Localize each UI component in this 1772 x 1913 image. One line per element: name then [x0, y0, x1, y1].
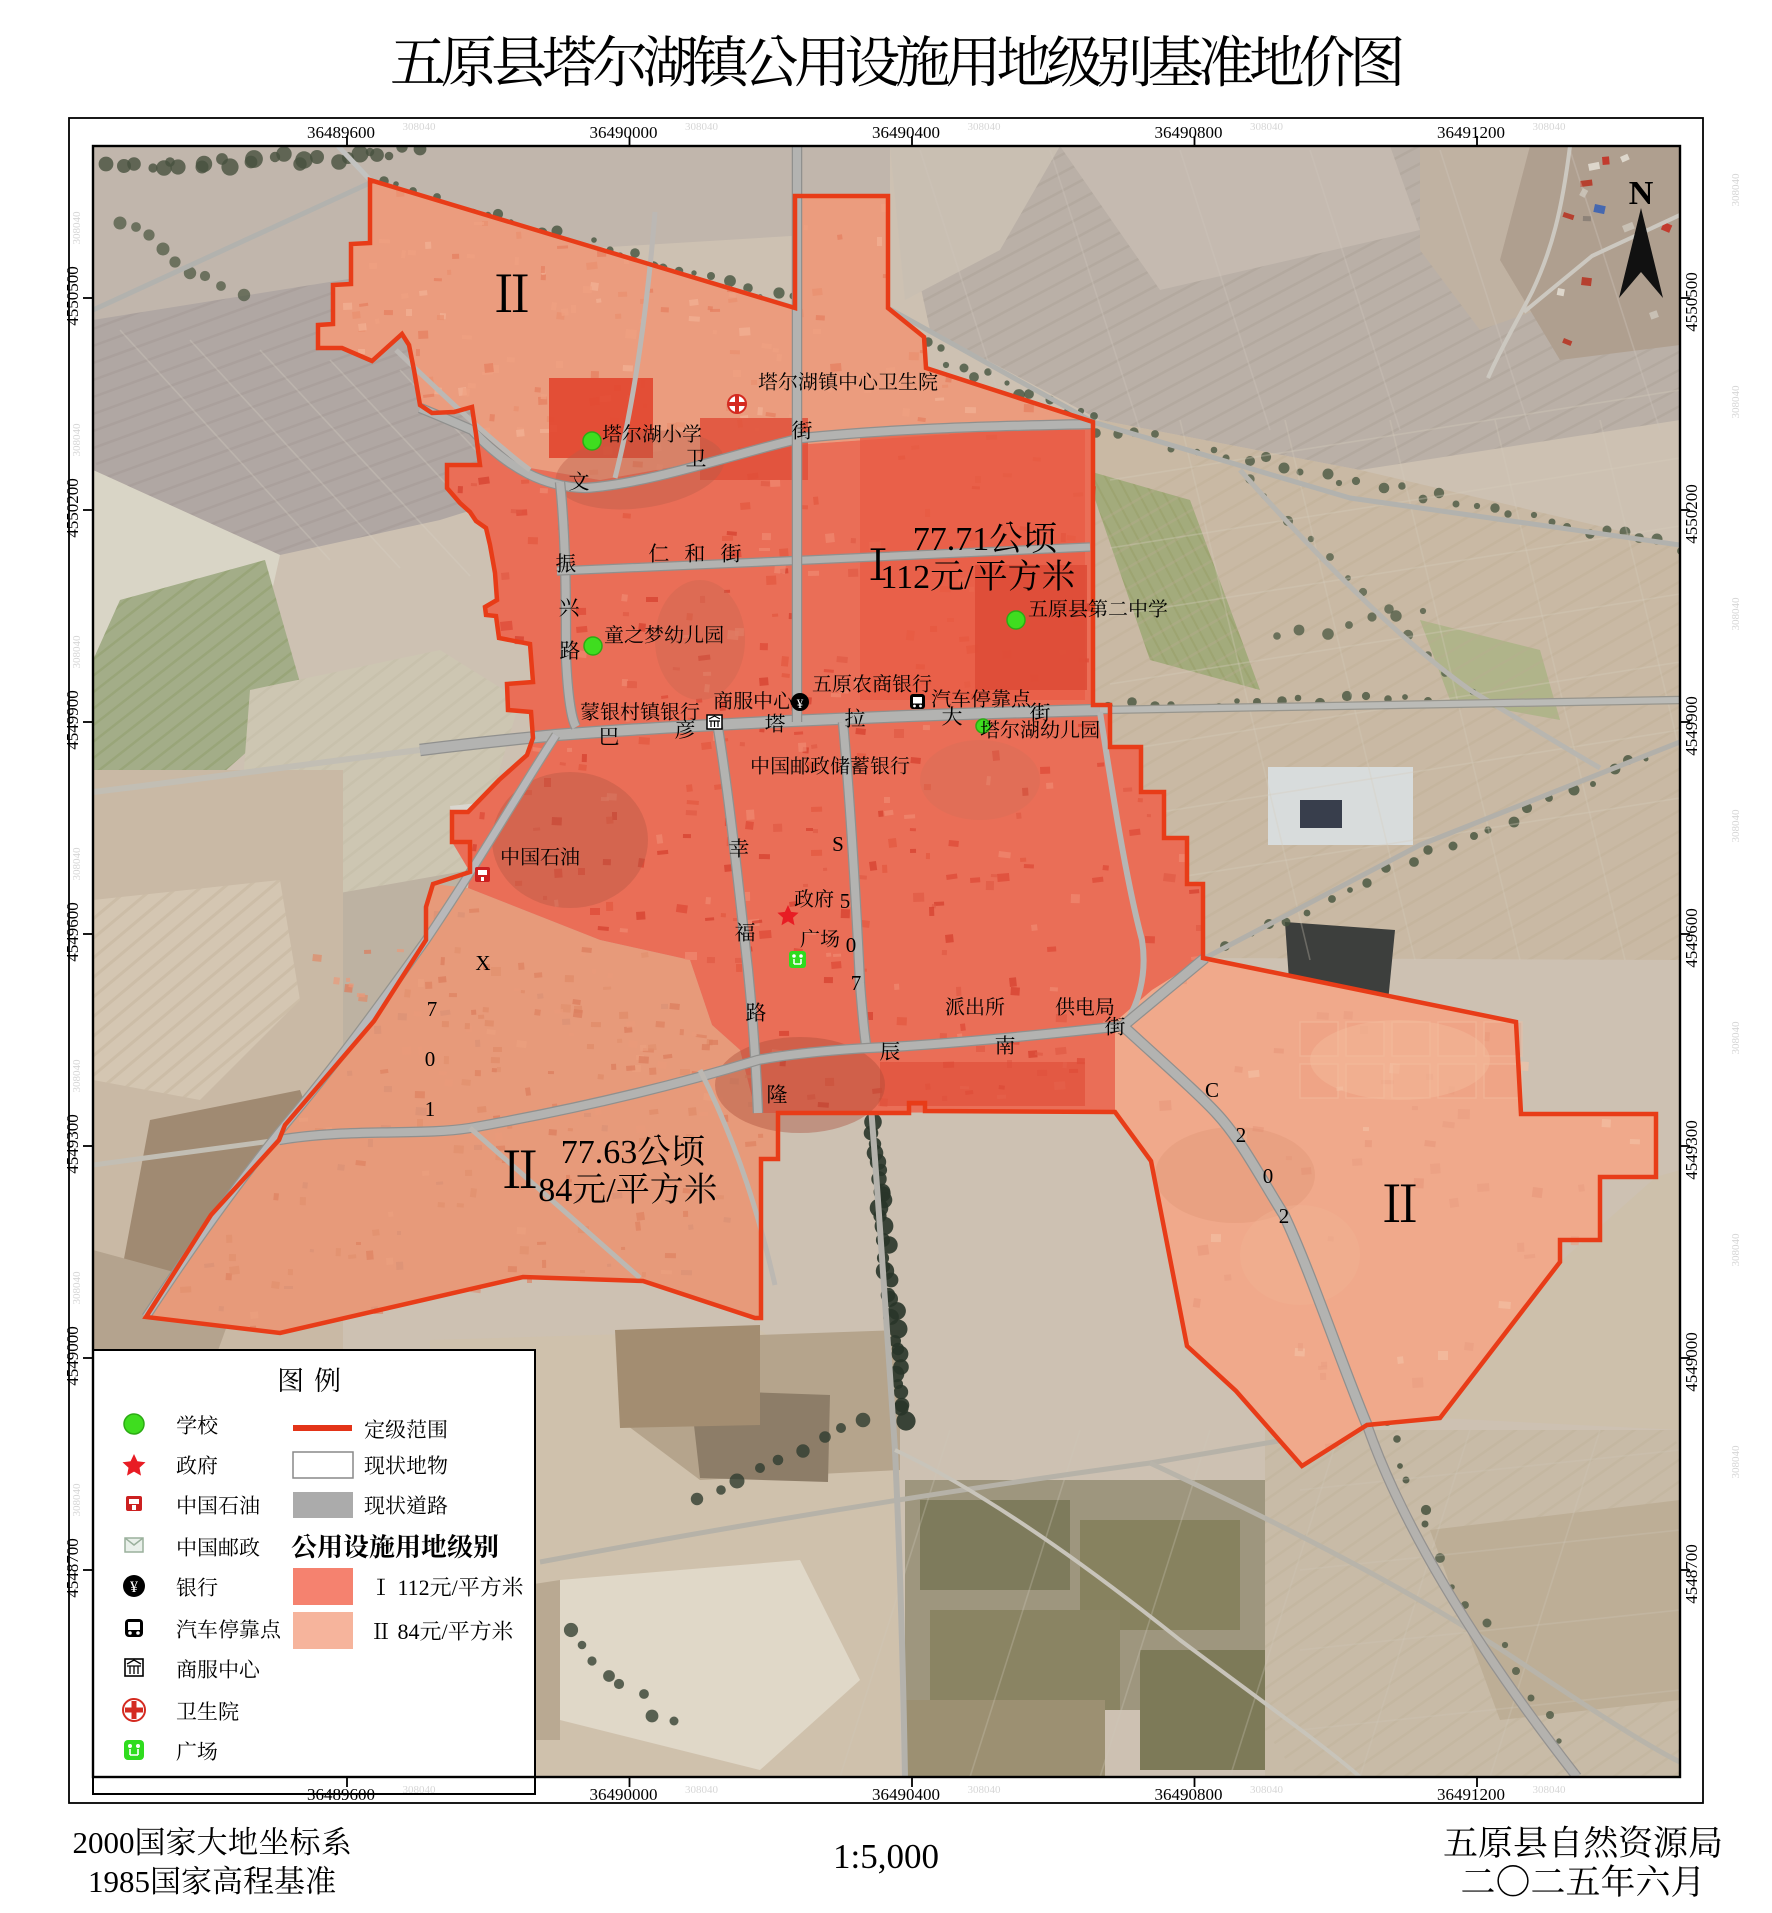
svg-text:308040: 308040	[1250, 121, 1284, 133]
svg-text:308040: 308040	[71, 1271, 83, 1305]
svg-text:308040: 308040	[71, 635, 83, 669]
svg-text:Ⅱ 84元/平方米: Ⅱ 84元/平方米	[370, 1619, 514, 1644]
svg-text:大: 大	[942, 705, 963, 729]
svg-text:0: 0	[425, 1047, 436, 1071]
svg-text:36489600: 36489600	[307, 123, 375, 142]
svg-text:彦: 彦	[675, 718, 696, 742]
svg-text:4549900: 4549900	[1682, 696, 1701, 756]
svg-text:幸: 幸	[729, 837, 750, 861]
svg-text:5: 5	[840, 889, 851, 913]
svg-text:辰: 辰	[880, 1040, 901, 1064]
svg-text:派出所: 派出所	[945, 997, 1005, 1019]
svg-text:308040: 308040	[71, 1059, 83, 1093]
svg-text:二〇二五年六月: 二〇二五年六月	[1460, 1863, 1705, 1902]
svg-text:308040: 308040	[1730, 1233, 1742, 1267]
svg-text:拉: 拉	[845, 707, 866, 731]
svg-text:公用设施用地级别: 公用设施用地级别	[291, 1533, 499, 1562]
svg-text:308040: 308040	[403, 121, 437, 133]
svg-text:商服中心: 商服中心	[713, 690, 793, 713]
svg-text:银行: 银行	[176, 1576, 218, 1600]
svg-text:308040: 308040	[968, 121, 1002, 133]
svg-text:中国邮政: 中国邮政	[176, 1536, 260, 1560]
svg-text:36490000: 36490000	[590, 1785, 658, 1804]
svg-text:77.63公顷: 77.63公顷	[561, 1134, 706, 1171]
svg-text:84元/平方米: 84元/平方米	[538, 1172, 717, 1209]
svg-text:S: S	[832, 832, 844, 856]
svg-text:仁: 仁	[649, 542, 670, 566]
svg-text:隆: 隆	[767, 1083, 788, 1107]
svg-text:广场: 广场	[800, 929, 840, 951]
svg-text:308040: 308040	[1730, 1445, 1742, 1479]
svg-text:¥: ¥	[797, 696, 804, 711]
svg-text:36490000: 36490000	[590, 123, 658, 142]
svg-text:308040: 308040	[685, 1784, 719, 1796]
svg-text:N: N	[1629, 175, 1654, 212]
svg-text:五原县自然资源局: 五原县自然资源局	[1443, 1824, 1723, 1863]
svg-text:五原农商银行: 五原农商银行	[812, 673, 932, 696]
svg-text:0: 0	[1263, 1164, 1274, 1188]
svg-text:中国邮政储蓄银行: 中国邮政储蓄银行	[750, 756, 910, 778]
svg-text:五原县塔尔湖镇公用设施用地级别基准地价图: 五原县塔尔湖镇公用设施用地级别基准地价图	[390, 33, 1403, 95]
svg-text:塔尔湖镇中心卫生院: 塔尔湖镇中心卫生院	[758, 372, 938, 394]
svg-text:4550500: 4550500	[1682, 272, 1701, 332]
svg-text:308040: 308040	[1730, 597, 1742, 631]
svg-text:4549600: 4549600	[1682, 908, 1701, 968]
svg-text:政府: 政府	[794, 889, 834, 911]
svg-text:路: 路	[746, 1001, 767, 1025]
svg-text:和: 和	[685, 542, 706, 566]
svg-text:4550200: 4550200	[1682, 484, 1701, 544]
svg-text:1985国家高程基准: 1985国家高程基准	[88, 1864, 336, 1899]
svg-text:现状地物: 现状地物	[364, 1454, 448, 1478]
svg-text:C: C	[1205, 1078, 1219, 1102]
svg-text:图例: 图例	[277, 1366, 351, 1396]
svg-text:街: 街	[792, 419, 813, 443]
svg-text:4549600: 4549600	[63, 902, 82, 962]
svg-text:童之梦幼儿园: 童之梦幼儿园	[604, 624, 724, 647]
svg-text:7: 7	[427, 997, 438, 1021]
svg-text:2: 2	[1236, 1123, 1247, 1147]
svg-text:2: 2	[1279, 1204, 1290, 1228]
svg-text:308040: 308040	[968, 1784, 1002, 1796]
svg-text:36490400: 36490400	[872, 1785, 940, 1804]
svg-text:4549300: 4549300	[1682, 1120, 1701, 1180]
svg-text:36489600: 36489600	[307, 1785, 375, 1804]
svg-text:卫: 卫	[686, 447, 707, 471]
svg-text:塔: 塔	[765, 712, 786, 736]
svg-text:112元/平方米: 112元/平方米	[880, 559, 1075, 596]
svg-text:308040: 308040	[71, 1483, 83, 1517]
svg-text:Ⅱ: Ⅱ	[487, 267, 537, 323]
svg-text:¥: ¥	[130, 1579, 138, 1596]
svg-text:308040: 308040	[1533, 1784, 1567, 1796]
svg-text:4548700: 4548700	[63, 1538, 82, 1598]
svg-text:中国石油: 中国石油	[176, 1494, 260, 1518]
svg-text:4549000: 4549000	[1682, 1332, 1701, 1392]
svg-text:308040: 308040	[685, 121, 719, 133]
svg-text:文: 文	[569, 470, 590, 494]
svg-text:308040: 308040	[403, 1784, 437, 1796]
svg-text:Ⅰ 112元/平方米: Ⅰ 112元/平方米	[370, 1575, 524, 1600]
svg-text:4549000: 4549000	[63, 1326, 82, 1386]
svg-text:Ⅱ: Ⅱ	[1375, 1177, 1425, 1233]
svg-text:4549900: 4549900	[63, 690, 82, 750]
svg-text:福: 福	[735, 921, 756, 945]
svg-text:巴: 巴	[599, 725, 620, 749]
svg-text:36490400: 36490400	[872, 123, 940, 142]
svg-text:中国石油: 中国石油	[500, 847, 580, 869]
svg-text:街: 街	[721, 542, 742, 566]
svg-text:街: 街	[1030, 701, 1051, 725]
svg-text:商服中心: 商服中心	[176, 1658, 260, 1682]
svg-text:308040: 308040	[1730, 173, 1742, 207]
svg-text:36491200: 36491200	[1437, 123, 1505, 142]
svg-text:308040: 308040	[71, 847, 83, 881]
svg-text:308040: 308040	[1730, 1021, 1742, 1055]
svg-text:77.71公顷: 77.71公顷	[913, 521, 1058, 558]
svg-text:4549300: 4549300	[63, 1114, 82, 1174]
svg-text:308040: 308040	[71, 211, 83, 245]
svg-text:4550200: 4550200	[63, 478, 82, 538]
svg-text:4548700: 4548700	[1682, 1544, 1701, 1604]
svg-text:308040: 308040	[1533, 121, 1567, 133]
svg-text:308040: 308040	[1730, 385, 1742, 419]
svg-text:0: 0	[846, 933, 857, 957]
svg-text:南: 南	[995, 1034, 1016, 1058]
svg-text:五原县第二中学: 五原县第二中学	[1028, 599, 1168, 621]
svg-text:学校: 学校	[176, 1414, 218, 1438]
svg-text:X: X	[475, 951, 490, 975]
svg-text:街: 街	[1105, 1015, 1126, 1039]
svg-text:4550500: 4550500	[63, 266, 82, 326]
svg-text:36491200: 36491200	[1437, 1785, 1505, 1804]
svg-text:1:5,000: 1:5,000	[833, 1837, 939, 1876]
svg-text:308040: 308040	[1730, 809, 1742, 843]
svg-text:路: 路	[560, 639, 581, 663]
svg-text:振: 振	[556, 552, 577, 576]
svg-text:36490800: 36490800	[1155, 1785, 1223, 1804]
svg-text:兴: 兴	[559, 596, 580, 620]
svg-text:汽车停靠点: 汽车停靠点	[176, 1618, 281, 1642]
svg-text:卫生院: 卫生院	[176, 1700, 239, 1724]
svg-text:现状道路: 现状道路	[364, 1494, 448, 1518]
svg-text:塔尔湖小学: 塔尔湖小学	[602, 424, 702, 446]
svg-text:308040: 308040	[71, 423, 83, 457]
svg-text:2000国家大地坐标系: 2000国家大地坐标系	[73, 1825, 352, 1860]
svg-text:定级范围: 定级范围	[364, 1418, 448, 1442]
svg-text:广场: 广场	[176, 1740, 218, 1764]
svg-text:308040: 308040	[1250, 1784, 1284, 1796]
svg-text:政府: 政府	[176, 1454, 218, 1478]
svg-text:1: 1	[425, 1097, 436, 1121]
svg-text:36490800: 36490800	[1155, 123, 1223, 142]
svg-text:7: 7	[851, 971, 862, 995]
